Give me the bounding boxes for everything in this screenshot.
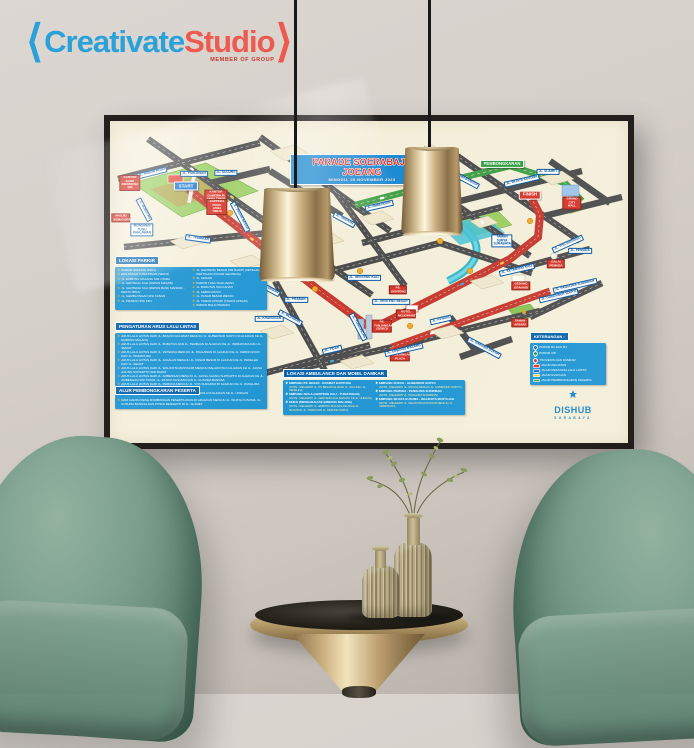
- map-label-balai-pemuda: BALAI PEMUDA: [547, 259, 565, 268]
- vase-tall-lip: [404, 513, 423, 518]
- panel-ambulance-damkar: LOKASI AMBULANCE DAN MOBIL DAMKAR ✚ SIMP…: [283, 362, 465, 415]
- line-yellow-icon: [533, 374, 540, 378]
- poster-frame: JL. KEBON ROJOJL. PAHLAWANJL. SULUNGKANT…: [104, 115, 634, 449]
- panel-lokasi-parkir-header: LOKASI PARKIR: [115, 256, 159, 265]
- logo-text-studio: Studio: [184, 24, 274, 59]
- vase-short-neck: [375, 549, 386, 568]
- map-label-taman-surya: TAMAN SURYA SURABAYA: [491, 234, 512, 247]
- panel-ambulance-damkar-header: LOKASI AMBULANCE DAN MOBIL DAMKAR: [283, 369, 388, 378]
- table-pedestal: [284, 634, 434, 690]
- side-table: [250, 560, 468, 700]
- vase-short-lip: [372, 546, 389, 551]
- armchair-right: [512, 450, 694, 740]
- vase-short: [362, 566, 400, 618]
- brand-logo: ⟨ CreativateStudio MEMBER OF GROUP ⟩: [26, 24, 293, 78]
- map-label-bank-indonesia: KANTOR BANK INDONESIA (BI): [119, 175, 140, 191]
- parking-item: ✚JL. PRABAN SISI KIRI: [118, 300, 190, 304]
- panel-alur-pembongkaran-header: ALUR PEMBONGKARAN PESERTA: [115, 386, 200, 395]
- panel-lokasi-parkir: LOKASI PARKIR ✚PARKIR GEDUNG SIOLA✚EKS P…: [115, 249, 267, 310]
- vase-tall-neck: [407, 516, 420, 545]
- panel-pengaturan-arus-header: PENGATURAN ARUS LALU LINTAS: [115, 322, 200, 331]
- map-label-bappeda: BAPPEDA PROV. JAWA TIMUR: [206, 199, 227, 215]
- pin-green-icon: [531, 350, 538, 357]
- map-label-jl-genteng-besar: JL. GENTENG BESAR: [372, 299, 410, 305]
- map-label-jl-sulung: JL. SULUNG: [214, 170, 237, 176]
- panel-keterangan: KETERANGAN : PARKIR R2 DAN R4PARKIR VIPT…: [530, 325, 606, 385]
- ambulance-route: (RUTE : MELEWATI JL. EMBONG MALANG KE AR…: [289, 405, 372, 411]
- dishub-name: DISHUB: [542, 405, 604, 415]
- map-label-grand-city: GRAND CITY MALL: [562, 197, 581, 210]
- line-green-icon: [533, 379, 540, 383]
- plus-bullet-icon: ✚: [193, 304, 196, 308]
- legend-row: JALUR PEMBONGKARAN PESERTA: [533, 379, 604, 383]
- map-label-monumen: MONUMEN TUGU PAHLAWAN: [130, 223, 153, 236]
- armchair-left-seat: [0, 599, 189, 742]
- legend-row: PARKIR R2 DAN R4: [533, 345, 604, 350]
- unloading-item: ✚DARI GARIS FINISH ROMBONGAN PESERTA AKA…: [118, 399, 265, 406]
- legend-row: TIM MEDIS DAN DAMKAR: [533, 358, 604, 363]
- dishub-logo: DISHUB SURABAYA: [542, 387, 604, 420]
- panel-alur-pembongkaran: ALUR PEMBONGKARAN PESERTA ✚DARI GARIS FI…: [115, 379, 267, 409]
- line-blue-icon: [533, 369, 540, 373]
- plus-bullet-icon: ✚: [118, 300, 121, 304]
- dishub-city: SURABAYA: [542, 416, 604, 420]
- map-label-start: START: [174, 181, 198, 190]
- map-label-masjid-kemayoran: MASJID KEMAYORAN: [111, 213, 130, 222]
- dishub-emblem-icon: [567, 390, 579, 400]
- logo-bracket-right-icon: ⟩: [276, 20, 293, 64]
- legend-row: PARKIR VIP: [533, 351, 604, 356]
- ambulance-route: (RUTE : MELEWATI JL. WALIKOTA MUSTAJAB M…: [379, 402, 462, 408]
- pendant-lamp-left: [259, 188, 335, 285]
- panel-keterangan-header: KETERANGAN :: [530, 332, 569, 341]
- table-stem: [342, 686, 376, 698]
- line-red-icon: [533, 364, 540, 368]
- logo-text-creativate: Creativate: [44, 24, 184, 59]
- lamp-cord-left: [294, 0, 297, 190]
- logo-tagline: MEMBER OF GROUP: [210, 58, 274, 64]
- map-label-jl-slamet: JL. SLAMET: [537, 169, 560, 175]
- map-label-taman-apsari: TAMAN APSARI: [511, 318, 528, 327]
- plant-branches: [352, 428, 484, 524]
- pendant-lamp-right: [401, 147, 463, 239]
- armchair-left: [0, 436, 202, 736]
- logo-bracket-left-icon: ⟨: [26, 20, 43, 64]
- map-label-jl-pemuda: JL. PEMUDA: [568, 248, 592, 254]
- map-label-jl-pahlawan: JL. PAHLAWAN: [180, 171, 208, 177]
- poster: JL. KEBON ROJOJL. PAHLAWANJL. SULUNGKANT…: [110, 121, 628, 443]
- map-label-jl-praban: JL. PRABAN: [284, 297, 308, 303]
- map-label-ps-tunjungan: PS. TUNJUNGAN (SEIKO): [372, 320, 392, 333]
- pin-red-icon: [531, 356, 538, 363]
- map-label-hotel-mojopahit: HOTEL MOJOPAHIT: [396, 309, 416, 318]
- legend-row: JALUR REKAYASA LALU LINTAS: [533, 369, 604, 373]
- lamp-cord-right: [428, 0, 431, 149]
- map-label-finish: FINISH: [519, 191, 541, 200]
- legend-row: JALUR EVAKUASI: [533, 374, 604, 378]
- armchair-right-seat: [517, 607, 694, 748]
- map-label-ps-genteng: PS. GENTENG: [389, 285, 407, 294]
- map-label-gedung-grahadi: GEDUNG GRAHADI: [511, 281, 530, 290]
- room-scene: { "brand": { "bracket_left": "⟨", "name_…: [0, 0, 694, 694]
- map-label-pembongkaran: PEMBONGKARAN: [480, 160, 524, 168]
- map-label-jl-genteng-kali: JL. GENTENG KALI: [347, 275, 381, 281]
- parking-item: ✚PARKIR BALAI PEMUDA: [193, 304, 265, 308]
- plus-bullet-icon: ✚: [118, 399, 121, 406]
